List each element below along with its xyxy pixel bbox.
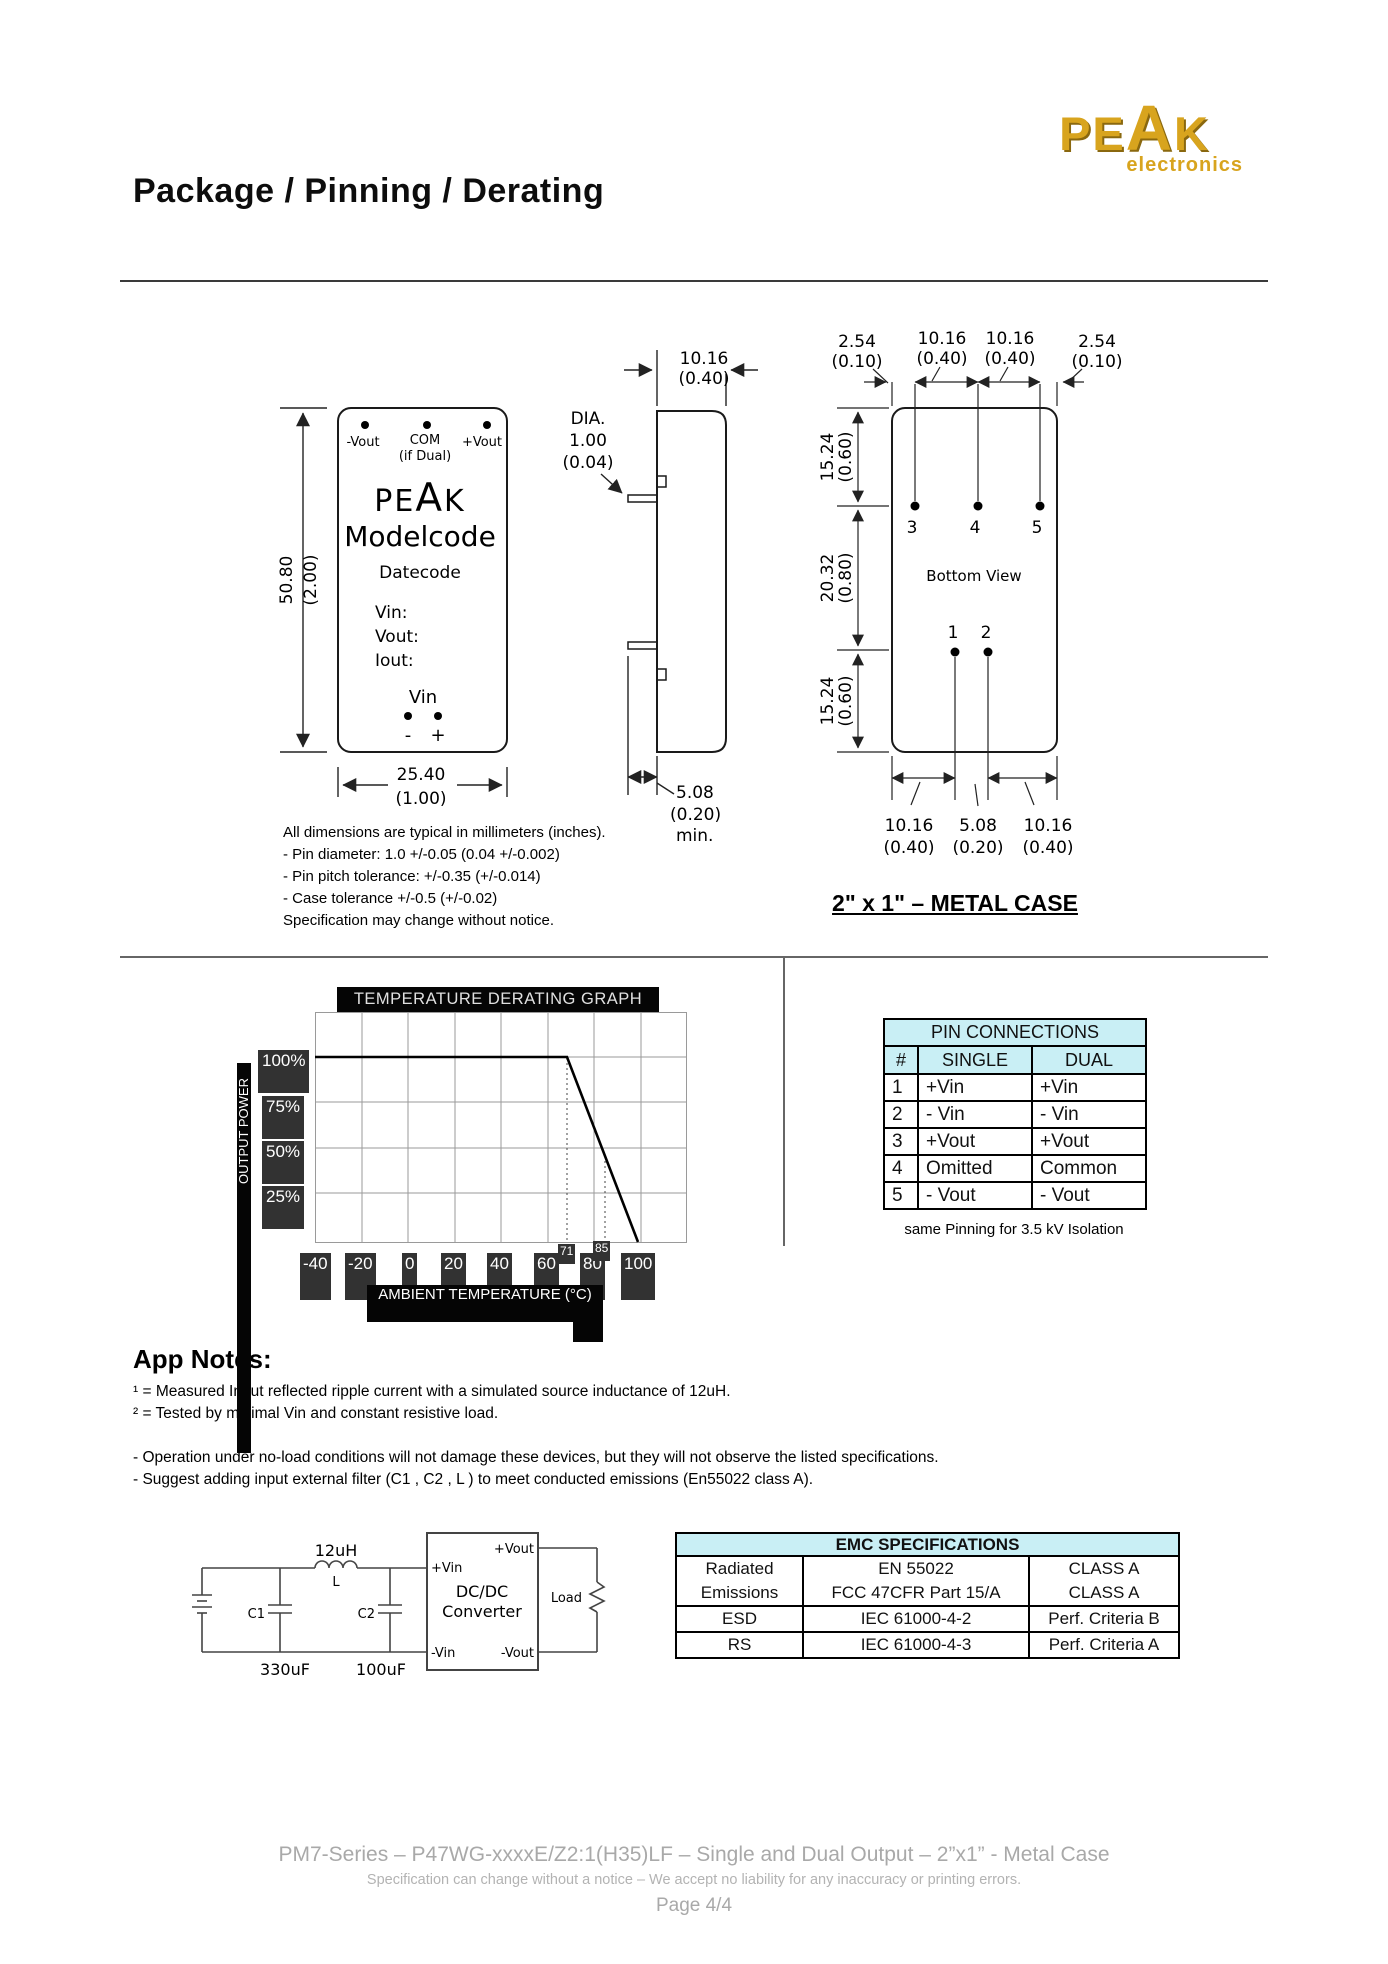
footer-line-2: Specification can change without a notic… — [0, 1872, 1388, 1888]
bv-top-dim1-mm: 2.54 — [838, 332, 876, 352]
bv-top-dim3-mm: 10.16 — [986, 329, 1035, 349]
bv-left-dim1-in: (0.60) — [836, 431, 856, 482]
emc-table: EMC SPECIFICATIONS Radiated Emissions EN… — [675, 1532, 1180, 1659]
emc-test: ESD — [676, 1606, 803, 1632]
pin-table-caption: same Pinning for 3.5 kV Isolation — [883, 1221, 1145, 1238]
pin-table-col-single: SINGLE — [918, 1046, 1032, 1074]
y-tick-label: 50% — [262, 1141, 304, 1184]
pin-number: 5 — [884, 1182, 918, 1209]
logo-subtext: electronics — [1022, 154, 1247, 177]
pin-table-col-dual: DUAL — [1032, 1046, 1146, 1074]
logo-wordmark: PEAK — [1022, 96, 1247, 160]
y-tick-label: 75% — [262, 1096, 304, 1139]
annotation-label-85: 85 — [593, 1241, 610, 1261]
circuit-wires — [192, 1533, 604, 1670]
pin-table-title: PIN CONNECTIONS — [884, 1019, 1146, 1046]
dimension-note-line: - Pin diameter: 1.0 +/-0.05 (0.04 +/-0.0… — [283, 844, 723, 866]
side-view-outline — [628, 411, 726, 752]
bv-bot-dim1-in: (0.40) — [883, 838, 934, 858]
converter-vout-neg: -Vout — [501, 1646, 534, 1661]
app-note-line: - Operation under no-load conditions wil… — [133, 1447, 1273, 1469]
cap1-name: C1 — [248, 1607, 265, 1622]
pin-table-row: 3 +Vout +Vout — [884, 1128, 1146, 1155]
brand-logo: PEAK electronics — [1022, 96, 1247, 177]
side-pin-mm: 5.08 — [676, 783, 714, 803]
bv-pin5-label: 5 — [1032, 518, 1043, 538]
bv-top-dim4-in: (0.10) — [1071, 352, 1122, 372]
pin-single-value: - Vin — [918, 1101, 1032, 1128]
side-depth-mm: 10.16 — [680, 349, 729, 369]
case-type-heading: 2" x 1" – METAL CASE — [790, 890, 1120, 917]
footer-line-1: PM7-Series – P47WG-xxxxE/Z2:1(H35)LF – S… — [0, 1843, 1388, 1867]
bv-left-dim1-mm: 15.24 — [818, 433, 838, 482]
bv-top-dim2-mm: 10.16 — [918, 329, 967, 349]
bv-left-dim3-in: (0.60) — [836, 675, 856, 726]
emc-standard: IEC 61000-4-2 — [803, 1606, 1029, 1632]
pin-single-value: +Vin — [918, 1074, 1032, 1101]
emc-row: ESD IEC 61000-4-2 Perf. Criteria B — [676, 1606, 1179, 1632]
pin-dual-value: Common — [1032, 1155, 1146, 1182]
emc-result: Perf. Criteria A — [1029, 1632, 1179, 1658]
bv-top-dim3-in: (0.40) — [984, 349, 1035, 369]
pin-single-value: Omitted — [918, 1155, 1032, 1182]
pin-dual-value: - Vin — [1032, 1101, 1146, 1128]
bottom-top-dimensions — [864, 367, 1084, 501]
front-vin-label: Vin — [409, 687, 437, 708]
converter-label-1: DC/DC — [456, 1582, 508, 1601]
pin-number: 4 — [884, 1155, 918, 1182]
front-height-in: (2.00) — [301, 554, 321, 605]
pin-number: 1 — [884, 1074, 918, 1101]
converter-vout-pos: +Vout — [494, 1542, 534, 1557]
dimension-note-line: Specification may change without notice. — [283, 910, 723, 932]
app-note-line: ² = Tested by minimal Vin and constant r… — [133, 1403, 1273, 1425]
plot-grid — [315, 1012, 687, 1243]
bv-left-dim3-mm: 15.24 — [818, 677, 838, 726]
datasheet-page: Package / Pinning / Derating PEAK electr… — [0, 0, 1388, 1964]
emc-standard: EN 55022 FCC 47CFR Part 15/A — [803, 1556, 1029, 1606]
pin-number: 2 — [884, 1101, 918, 1128]
front-minus-label: - — [405, 725, 412, 746]
bv-bot-dim2-mm: 5.08 — [959, 816, 997, 836]
bv-bot-dim2-in: (0.20) — [952, 838, 1003, 858]
front-pin-label-com: COM — [410, 433, 441, 448]
pin-dual-value: - Vout — [1032, 1182, 1146, 1209]
pin-single-value: - Vout — [918, 1182, 1032, 1209]
front-modelcode: Modelcode — [344, 520, 496, 553]
inductor-name: L — [332, 1575, 340, 1590]
page-title: Package / Pinning / Derating — [133, 172, 604, 211]
bv-top-dim4-mm: 2.54 — [1078, 332, 1116, 352]
y-tick-label: 25% — [262, 1186, 304, 1229]
front-pin-label-vout-pos: +Vout — [462, 435, 502, 450]
y-tick-label: 100% — [258, 1050, 309, 1093]
derating-curve — [315, 1057, 638, 1242]
app-note-line: ¹ = Measured Input reflected ripple curr… — [133, 1381, 1273, 1403]
bv-pin4-label: 4 — [970, 518, 981, 538]
pin-table-row: 5 - Vout - Vout — [884, 1182, 1146, 1209]
dimension-note-line: - Case tolerance +/-0.5 (+/-0.02) — [283, 888, 723, 910]
bv-bot-dim1-mm: 10.16 — [885, 816, 934, 836]
y-axis-label: OUTPUT POWER — [237, 1064, 251, 1198]
emc-result: Perf. Criteria B — [1029, 1606, 1179, 1632]
pin-table-row: 1 +Vin +Vin — [884, 1074, 1146, 1101]
pin-dual-value: +Vin — [1032, 1074, 1146, 1101]
logo-text-a: A — [1126, 96, 1174, 160]
pin-number: 3 — [884, 1128, 918, 1155]
front-plus-label: + — [430, 725, 445, 746]
annotation-guides — [567, 1058, 605, 1243]
bv-top-dim2-in: (0.40) — [916, 349, 967, 369]
inductor-value: 12uH — [315, 1541, 358, 1560]
front-field-vout: Vout: — [375, 627, 419, 647]
side-dia-label-2: 1.00 — [569, 431, 607, 451]
input-filter-circuit: 12uH L C1 C2 330uF 100uF +Vin -Vin DC/DC… — [180, 1528, 620, 1688]
side-dia-label-1: DIA. — [571, 409, 606, 429]
x-axis-label: AMBIENT TEMPERATURE (°C) — [367, 1285, 603, 1322]
emc-test: Radiated Emissions — [676, 1556, 803, 1606]
side-depth-in: (0.40) — [678, 369, 729, 389]
front-width-mm: 25.40 — [397, 765, 446, 785]
bv-bot-dim3-in: (0.40) — [1022, 838, 1073, 858]
bottom-bottom-dimensions — [892, 657, 1057, 806]
section-divider-vertical — [783, 956, 785, 1246]
cap2-value: 100uF — [356, 1660, 406, 1679]
cap1-value: 330uF — [260, 1660, 310, 1679]
dimension-note-line: - Pin pitch tolerance: +/-0.35 (+/-0.014… — [283, 866, 723, 888]
load-label: Load — [551, 1591, 582, 1606]
bv-bot-dim3-mm: 10.16 — [1024, 816, 1073, 836]
dimension-note-line: All dimensions are typical in millimeter… — [283, 822, 723, 844]
converter-vin-neg: -Vin — [431, 1646, 455, 1661]
emc-row: RS IEC 61000-4-3 Perf. Criteria A — [676, 1632, 1179, 1658]
front-height-mm: 50.80 — [277, 556, 297, 605]
footer-page-number: Page 4/4 — [0, 1895, 1388, 1917]
pin-table-row: 4 Omitted Common — [884, 1155, 1146, 1182]
converter-label-2: Converter — [442, 1602, 522, 1621]
app-note-line — [133, 1425, 1273, 1447]
logo-text-k: K — [1174, 110, 1210, 157]
emc-result: CLASS A CLASS A — [1029, 1556, 1179, 1606]
side-dia-label-3: (0.04) — [562, 453, 613, 473]
front-pin-label-ifdual: (if Dual) — [399, 449, 451, 464]
logo-text-pe: PE — [1059, 110, 1126, 157]
pin-table-col-num: # — [884, 1046, 918, 1074]
bv-pin2-label: 2 — [981, 623, 992, 643]
bv-pin3-label: 3 — [907, 518, 918, 538]
app-note-line: - Suggest adding input external filter (… — [133, 1469, 1273, 1491]
converter-vin-pos: +Vin — [431, 1561, 462, 1576]
bv-left-dim2-mm: 20.32 — [818, 554, 838, 603]
front-brand-text: PEAK — [374, 476, 465, 521]
side-dia-leader — [601, 474, 622, 493]
derating-plot — [315, 1012, 687, 1243]
bv-pin1-label: 1 — [948, 623, 959, 643]
annotation-label-71: 71 — [558, 1244, 575, 1264]
derating-graph-title: TEMPERATURE DERATING GRAPH — [337, 987, 659, 1012]
bottom-view-label: Bottom View — [926, 567, 1021, 585]
emc-row: Radiated Emissions EN 55022 FCC 47CFR Pa… — [676, 1556, 1179, 1606]
pin-table-row: 2 - Vin - Vin — [884, 1101, 1146, 1128]
front-field-iout: Iout: — [375, 651, 414, 671]
emc-table-title: EMC SPECIFICATIONS — [676, 1533, 1179, 1556]
front-width-in: (1.00) — [395, 789, 446, 809]
emc-standard: IEC 61000-4-3 — [803, 1632, 1029, 1658]
emc-test: RS — [676, 1632, 803, 1658]
pin-single-value: +Vout — [918, 1128, 1032, 1155]
x-axis-label-artifact — [573, 1321, 603, 1342]
app-notes: ¹ = Measured Input reflected ripple curr… — [133, 1381, 1273, 1491]
cap2-name: C2 — [358, 1607, 375, 1622]
front-field-vin: Vin: — [375, 603, 407, 623]
bv-top-dim1-in: (0.10) — [831, 352, 882, 372]
section-divider — [120, 956, 1268, 958]
pin-connections-table: PIN CONNECTIONS # SINGLE DUAL 1 +Vin +Vi… — [883, 1018, 1147, 1210]
front-datecode: Datecode — [379, 563, 461, 583]
dimension-notes: All dimensions are typical in millimeter… — [283, 822, 723, 932]
header-divider — [120, 280, 1268, 282]
bv-left-dim2-in: (0.80) — [836, 552, 856, 603]
pin-dual-value: +Vout — [1032, 1128, 1146, 1155]
x-tick-label: -40 — [300, 1253, 331, 1300]
x-tick-label: 100 — [621, 1253, 655, 1300]
side-pin-length-dimension — [628, 656, 674, 795]
front-pin-label-vout-neg: -Vout — [346, 435, 379, 450]
